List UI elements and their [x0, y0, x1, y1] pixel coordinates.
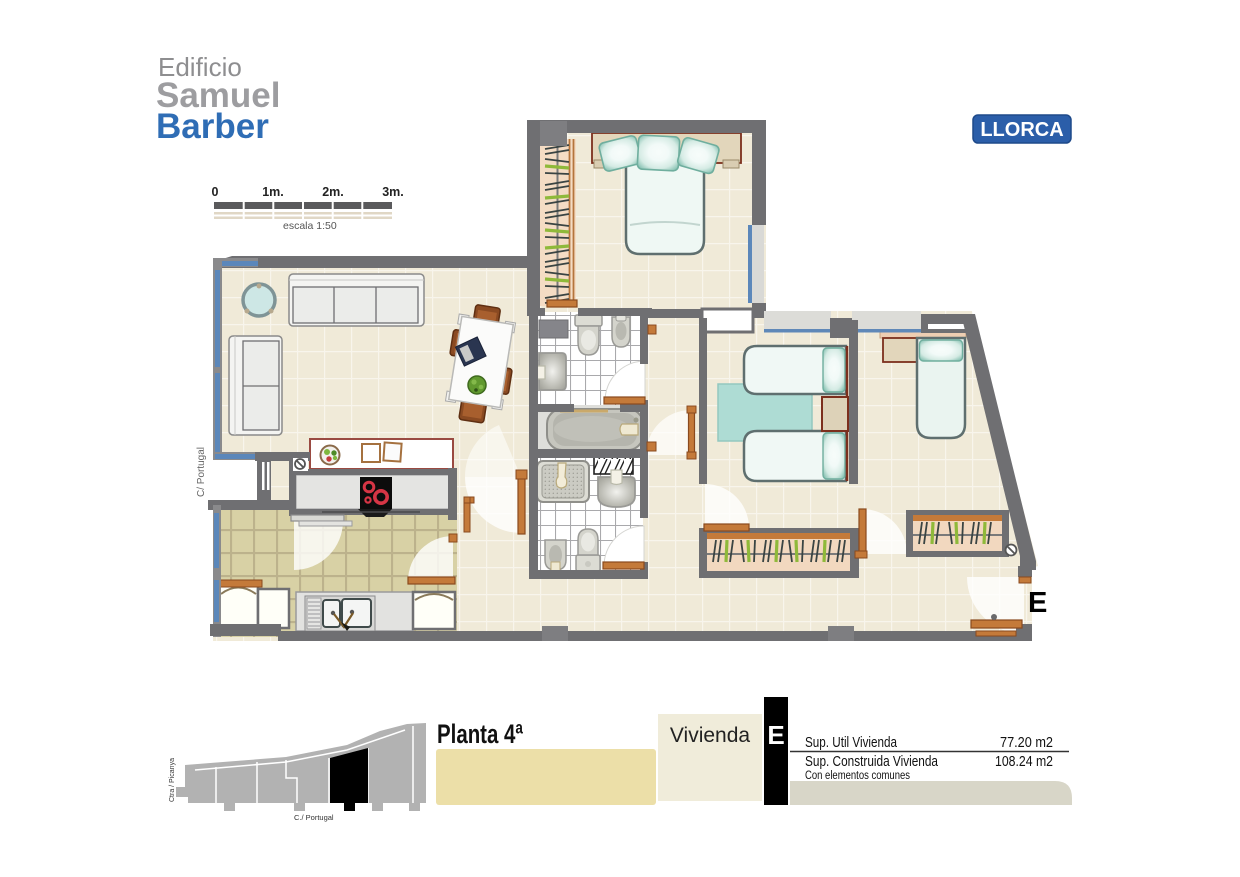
svg-text:Sup. Util Vivienda: Sup. Util Vivienda [805, 735, 898, 751]
svg-text:2m.: 2m. [322, 185, 344, 199]
svg-text:E: E [1028, 587, 1047, 619]
svg-text:Ctra / Picanya: Ctra / Picanya [169, 758, 176, 802]
svg-text:C./ Portugal: C./ Portugal [294, 813, 334, 822]
svg-text:77.20 m2: 77.20 m2 [1000, 735, 1053, 751]
svg-text:3m.: 3m. [382, 185, 404, 199]
svg-text:LLORCA: LLORCA [980, 119, 1063, 141]
svg-text:0: 0 [212, 185, 219, 199]
svg-text:Planta 4ª: Planta 4ª [437, 719, 523, 749]
svg-text:Con elementos comunes: Con elementos comunes [805, 770, 910, 782]
svg-text:escala 1:50: escala 1:50 [283, 220, 337, 232]
svg-text:Vivienda: Vivienda [670, 724, 750, 747]
svg-text:1m.: 1m. [262, 185, 284, 199]
svg-text:108.24 m2: 108.24 m2 [995, 754, 1053, 770]
svg-text:Barber: Barber [156, 107, 269, 146]
svg-text:Sup. Construida Vivienda: Sup. Construida Vivienda [805, 754, 939, 770]
svg-text:E: E [767, 720, 784, 750]
svg-text:C/ Portugal: C/ Portugal [196, 447, 207, 497]
